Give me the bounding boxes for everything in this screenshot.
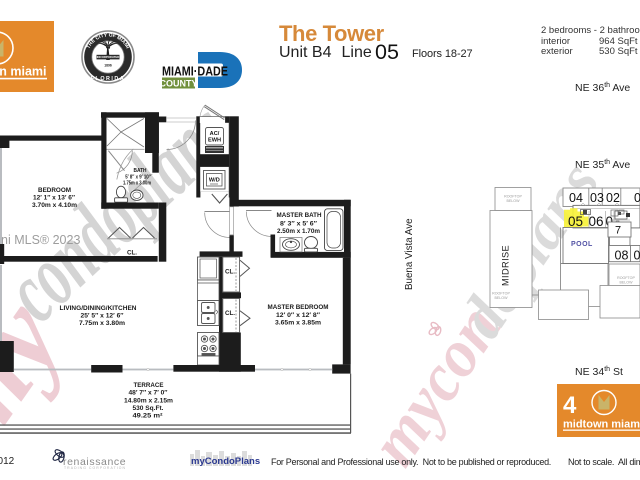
svg-text:25′ 5″ x 12′ 6″: 25′ 5″ x 12′ 6″ <box>81 312 124 319</box>
svg-text:1.75m x 3.00m: 1.75m x 3.00m <box>123 180 151 186</box>
svg-text:4: 4 <box>563 392 577 419</box>
svg-text:12′ 0″ x 12′ 8″: 12′ 0″ x 12′ 8″ <box>276 312 320 319</box>
svg-text:2.50m x 1.70m: 2.50m x 1.70m <box>277 228 321 235</box>
svg-text:BELOW: BELOW <box>620 281 634 285</box>
svg-text:ROOFTOP: ROOFTOP <box>492 292 510 296</box>
svg-text:midtown miami: midtown miami <box>563 418 640 430</box>
svg-text:ROOFTOP: ROOFTOP <box>617 276 635 280</box>
svg-text:W/D: W/D <box>209 178 220 184</box>
svg-text:48′ 7″ x 7′ 0″: 48′ 7″ x 7′ 0″ <box>129 391 168 397</box>
svg-text:3.70m x 4.10m: 3.70m x 4.10m <box>32 202 78 209</box>
svg-text:7: 7 <box>615 225 621 237</box>
svg-text:ROOFTOP: ROOFTOP <box>504 195 522 199</box>
svg-text:MIDRISE: MIDRISE <box>501 245 511 286</box>
svg-text:TERRACE: TERRACE <box>134 382 164 389</box>
svg-text:14.80m x 2.15m: 14.80m x 2.15m <box>124 398 173 404</box>
svg-text:LIVING/DINING/KITCHEN: LIVING/DINING/KITCHEN <box>60 305 137 312</box>
svg-text:AC/: AC/ <box>210 131 220 137</box>
svg-text:530 Sq.Ft.: 530 Sq.Ft. <box>133 406 164 412</box>
svg-text:MASTER BATH: MASTER BATH <box>277 212 322 219</box>
svg-text:CL.: CL. <box>225 310 235 317</box>
svg-text:TRADING CORPORATION: TRADING CORPORATION <box>64 466 126 470</box>
svg-text:POOL: POOL <box>571 241 593 248</box>
svg-text:EWH: EWH <box>208 138 221 144</box>
svg-text:CL.: CL. <box>127 250 137 257</box>
svg-text:0: 0 <box>634 249 640 263</box>
svg-text:03: 03 <box>590 191 604 205</box>
svg-text:myCondoPlans: myCondoPlans <box>191 456 260 467</box>
svg-text:0: 0 <box>634 191 640 205</box>
svg-text:BELOW: BELOW <box>507 199 521 203</box>
svg-text:02: 02 <box>606 191 620 205</box>
svg-text:08: 08 <box>615 249 629 263</box>
svg-text:04: 04 <box>569 191 583 205</box>
svg-text:BEDROOM: BEDROOM <box>38 187 71 194</box>
svg-text:7.75m x 3.80m: 7.75m x 3.80m <box>79 320 126 327</box>
svg-text:06: 06 <box>589 214 604 229</box>
svg-text:49.25 m²: 49.25 m² <box>133 412 163 419</box>
svg-text:05: 05 <box>568 214 583 229</box>
svg-text:BATH: BATH <box>134 168 147 174</box>
svg-text:8′ 3″ x 5′ 6″: 8′ 3″ x 5′ 6″ <box>280 220 317 227</box>
svg-text:BELOW: BELOW <box>495 296 509 300</box>
svg-text:3.65m x 3.85m: 3.65m x 3.85m <box>275 319 322 326</box>
svg-text:12′ 1″ x 13′ 6″: 12′ 1″ x 13′ 6″ <box>33 195 75 202</box>
svg-text:CL.: CL. <box>225 269 235 276</box>
svg-text:MASTER BEDROOM: MASTER BEDROOM <box>268 304 329 311</box>
